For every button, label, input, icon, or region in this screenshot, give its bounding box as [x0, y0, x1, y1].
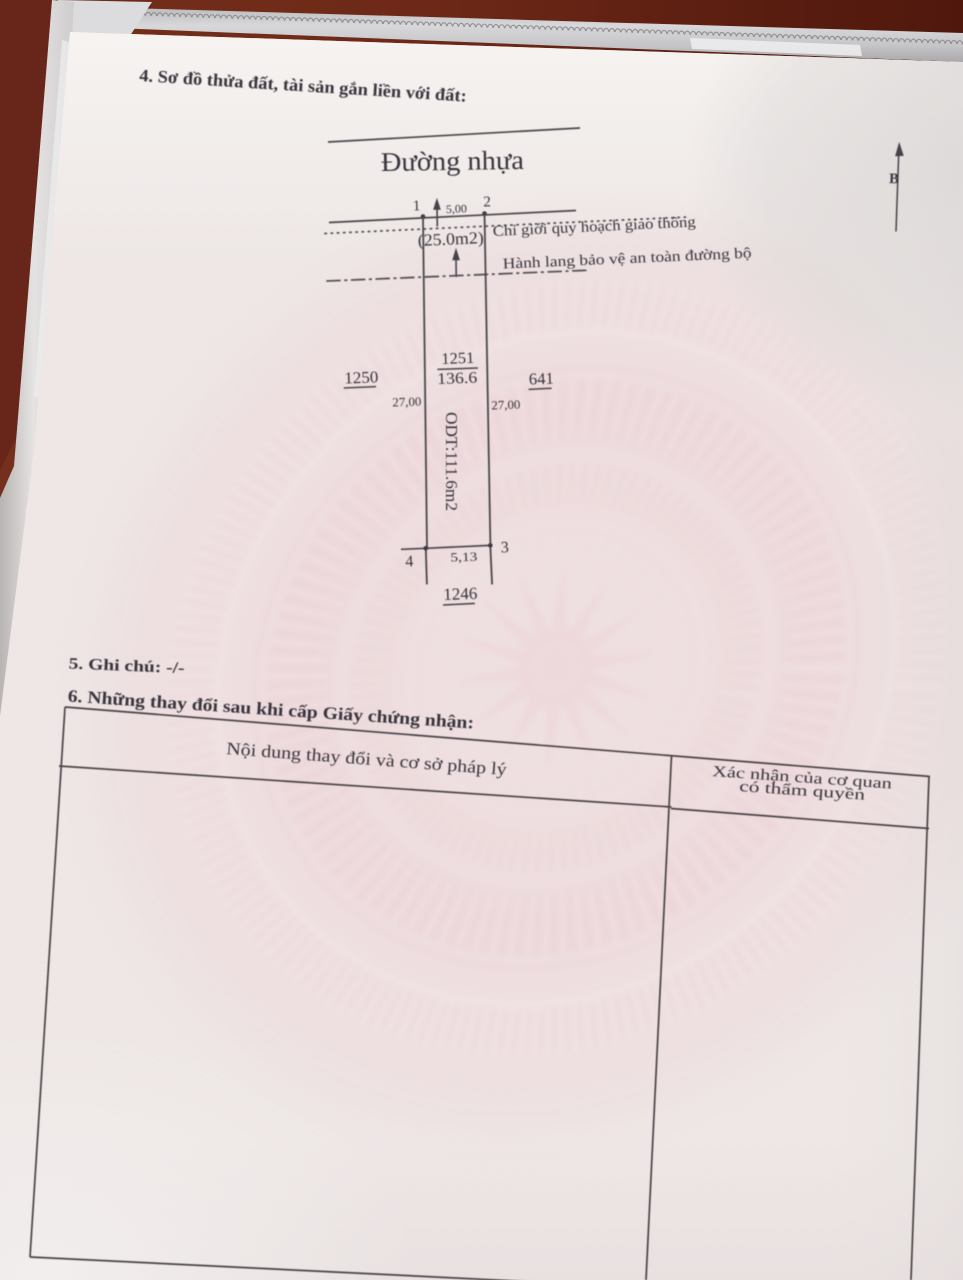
svg-text:27,00: 27,00	[491, 397, 520, 412]
svg-text:3: 3	[501, 539, 510, 556]
svg-text:2: 2	[483, 194, 491, 210]
svg-text:ODT:111.6m2: ODT:111.6m2	[442, 412, 461, 511]
svg-text:5,00: 5,00	[446, 203, 468, 216]
svg-text:(25.0m2): (25.0m2)	[417, 228, 484, 250]
svg-text:1246: 1246	[443, 584, 478, 604]
svg-text:1: 1	[413, 198, 421, 214]
svg-text:641: 641	[528, 369, 554, 389]
svg-text:Đường nhựa: Đường nhựa	[381, 145, 524, 177]
svg-text:27,00: 27,00	[392, 394, 421, 409]
svg-text:1251: 1251	[441, 350, 475, 368]
svg-text:5,13: 5,13	[450, 550, 477, 565]
svg-text:4: 4	[405, 553, 414, 570]
svg-text:136.6: 136.6	[437, 370, 478, 388]
svg-text:1250: 1250	[344, 367, 379, 387]
svg-text:B: B	[889, 171, 900, 187]
